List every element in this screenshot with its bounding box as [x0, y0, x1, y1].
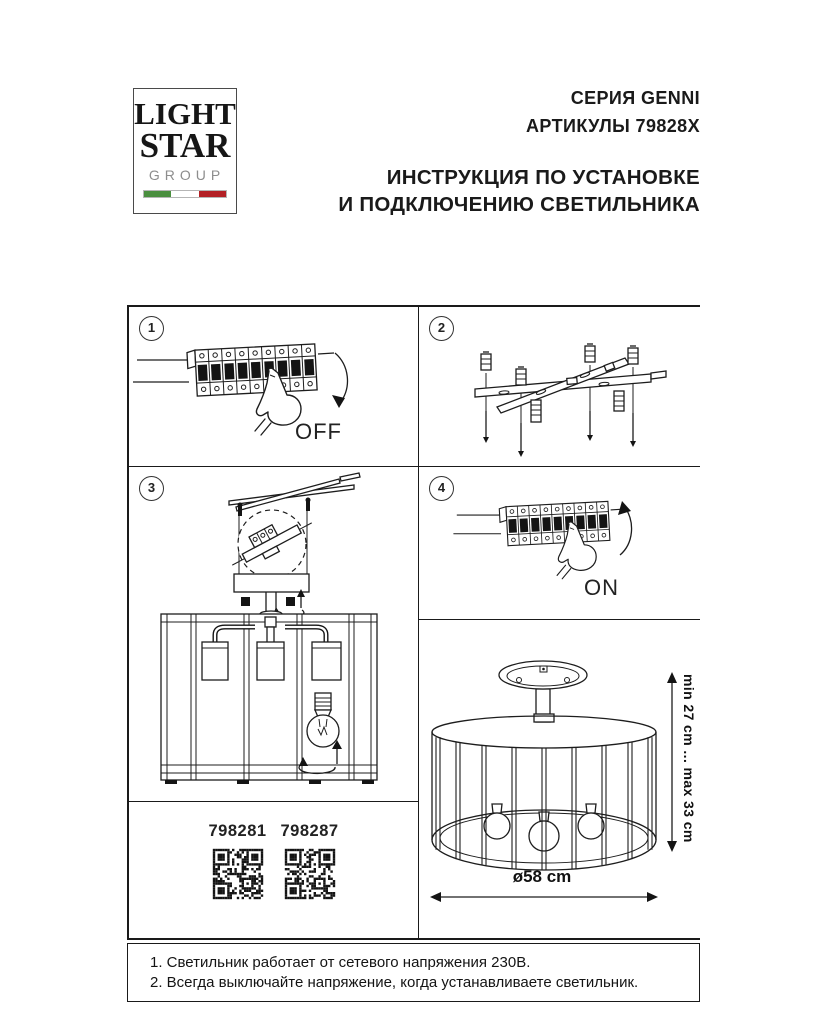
step-panel-2: 2 [419, 307, 700, 467]
instruction-line-2: И ПОДКЛЮЧЕНИЮ СВЕТИЛЬНИКА [338, 191, 700, 218]
off-label: OFF [295, 419, 342, 445]
step-number-badge: 4 [429, 476, 454, 501]
qr-code [211, 847, 265, 901]
logo-word-group: GROUP [138, 167, 236, 183]
height-range-label: min 27 cm ... max 33 cm [681, 674, 697, 850]
mounting-screws [483, 411, 636, 457]
instruction-page: LIGHT STAR GROUP СЕРИЯ GENNI АРТИКУЛЫ 79… [0, 0, 826, 1024]
flag-white [171, 191, 198, 197]
step-number-badge: 1 [139, 316, 164, 341]
assembly-illustration [129, 467, 417, 799]
qr-code [283, 847, 337, 901]
bracket-mounting-illustration [419, 307, 698, 464]
article-number: 798281 [209, 822, 267, 841]
articles-title: АРТИКУЛЫ 79828X [338, 112, 700, 140]
lamp-dimension-drawing [419, 620, 698, 936]
step-panel-3: 3 [129, 467, 419, 802]
qr-item: 798281 [209, 822, 267, 901]
qr-panel: 798281 798287 [129, 802, 419, 938]
on-label: ON [584, 575, 619, 601]
diameter-dimension-arrow [430, 892, 658, 902]
step-number-badge: 2 [429, 316, 454, 341]
italian-flag-stripe [143, 190, 227, 198]
flag-red [199, 191, 226, 197]
steps-grid: 1 OFF [127, 305, 700, 940]
series-title: СЕРИЯ GENNI [338, 84, 700, 112]
height-dimension-arrow [667, 672, 677, 852]
flag-green [144, 191, 171, 197]
step-panel-4: 4 ON [419, 467, 700, 620]
logo-word-star: STAR [134, 129, 236, 162]
qr-item: 798287 [281, 822, 339, 901]
instruction-line-1: ИНСТРУКЦИЯ ПО УСТАНОВКЕ [338, 164, 700, 191]
logo-word-light: LIGHT [134, 99, 236, 129]
step-panel-1: 1 OFF [129, 307, 419, 467]
note-line-1: 1. Светильник работает от сетевого напря… [150, 953, 699, 973]
breaker-off-illustration [129, 307, 417, 464]
instruction-title: ИНСТРУКЦИЯ ПО УСТАНОВКЕ И ПОДКЛЮЧЕНИЮ СВ… [338, 164, 700, 218]
bulbs [484, 804, 604, 851]
breaker-on-illustration [419, 467, 698, 617]
diameter-label: ø58 cm [472, 867, 612, 887]
dimensions-panel: min 27 cm ... max 33 cm ø58 cm [419, 620, 700, 938]
footer-notes: 1. Светильник работает от сетевого напря… [127, 943, 700, 1002]
lightstar-logo: LIGHT STAR GROUP [133, 88, 237, 214]
title-block: СЕРИЯ GENNI АРТИКУЛЫ 79828X ИНСТРУКЦИЯ П… [338, 84, 700, 218]
article-number: 798287 [281, 822, 339, 841]
step-number-badge: 3 [139, 476, 164, 501]
note-line-2: 2. Всегда выключайте напряжение, когда у… [150, 973, 699, 993]
